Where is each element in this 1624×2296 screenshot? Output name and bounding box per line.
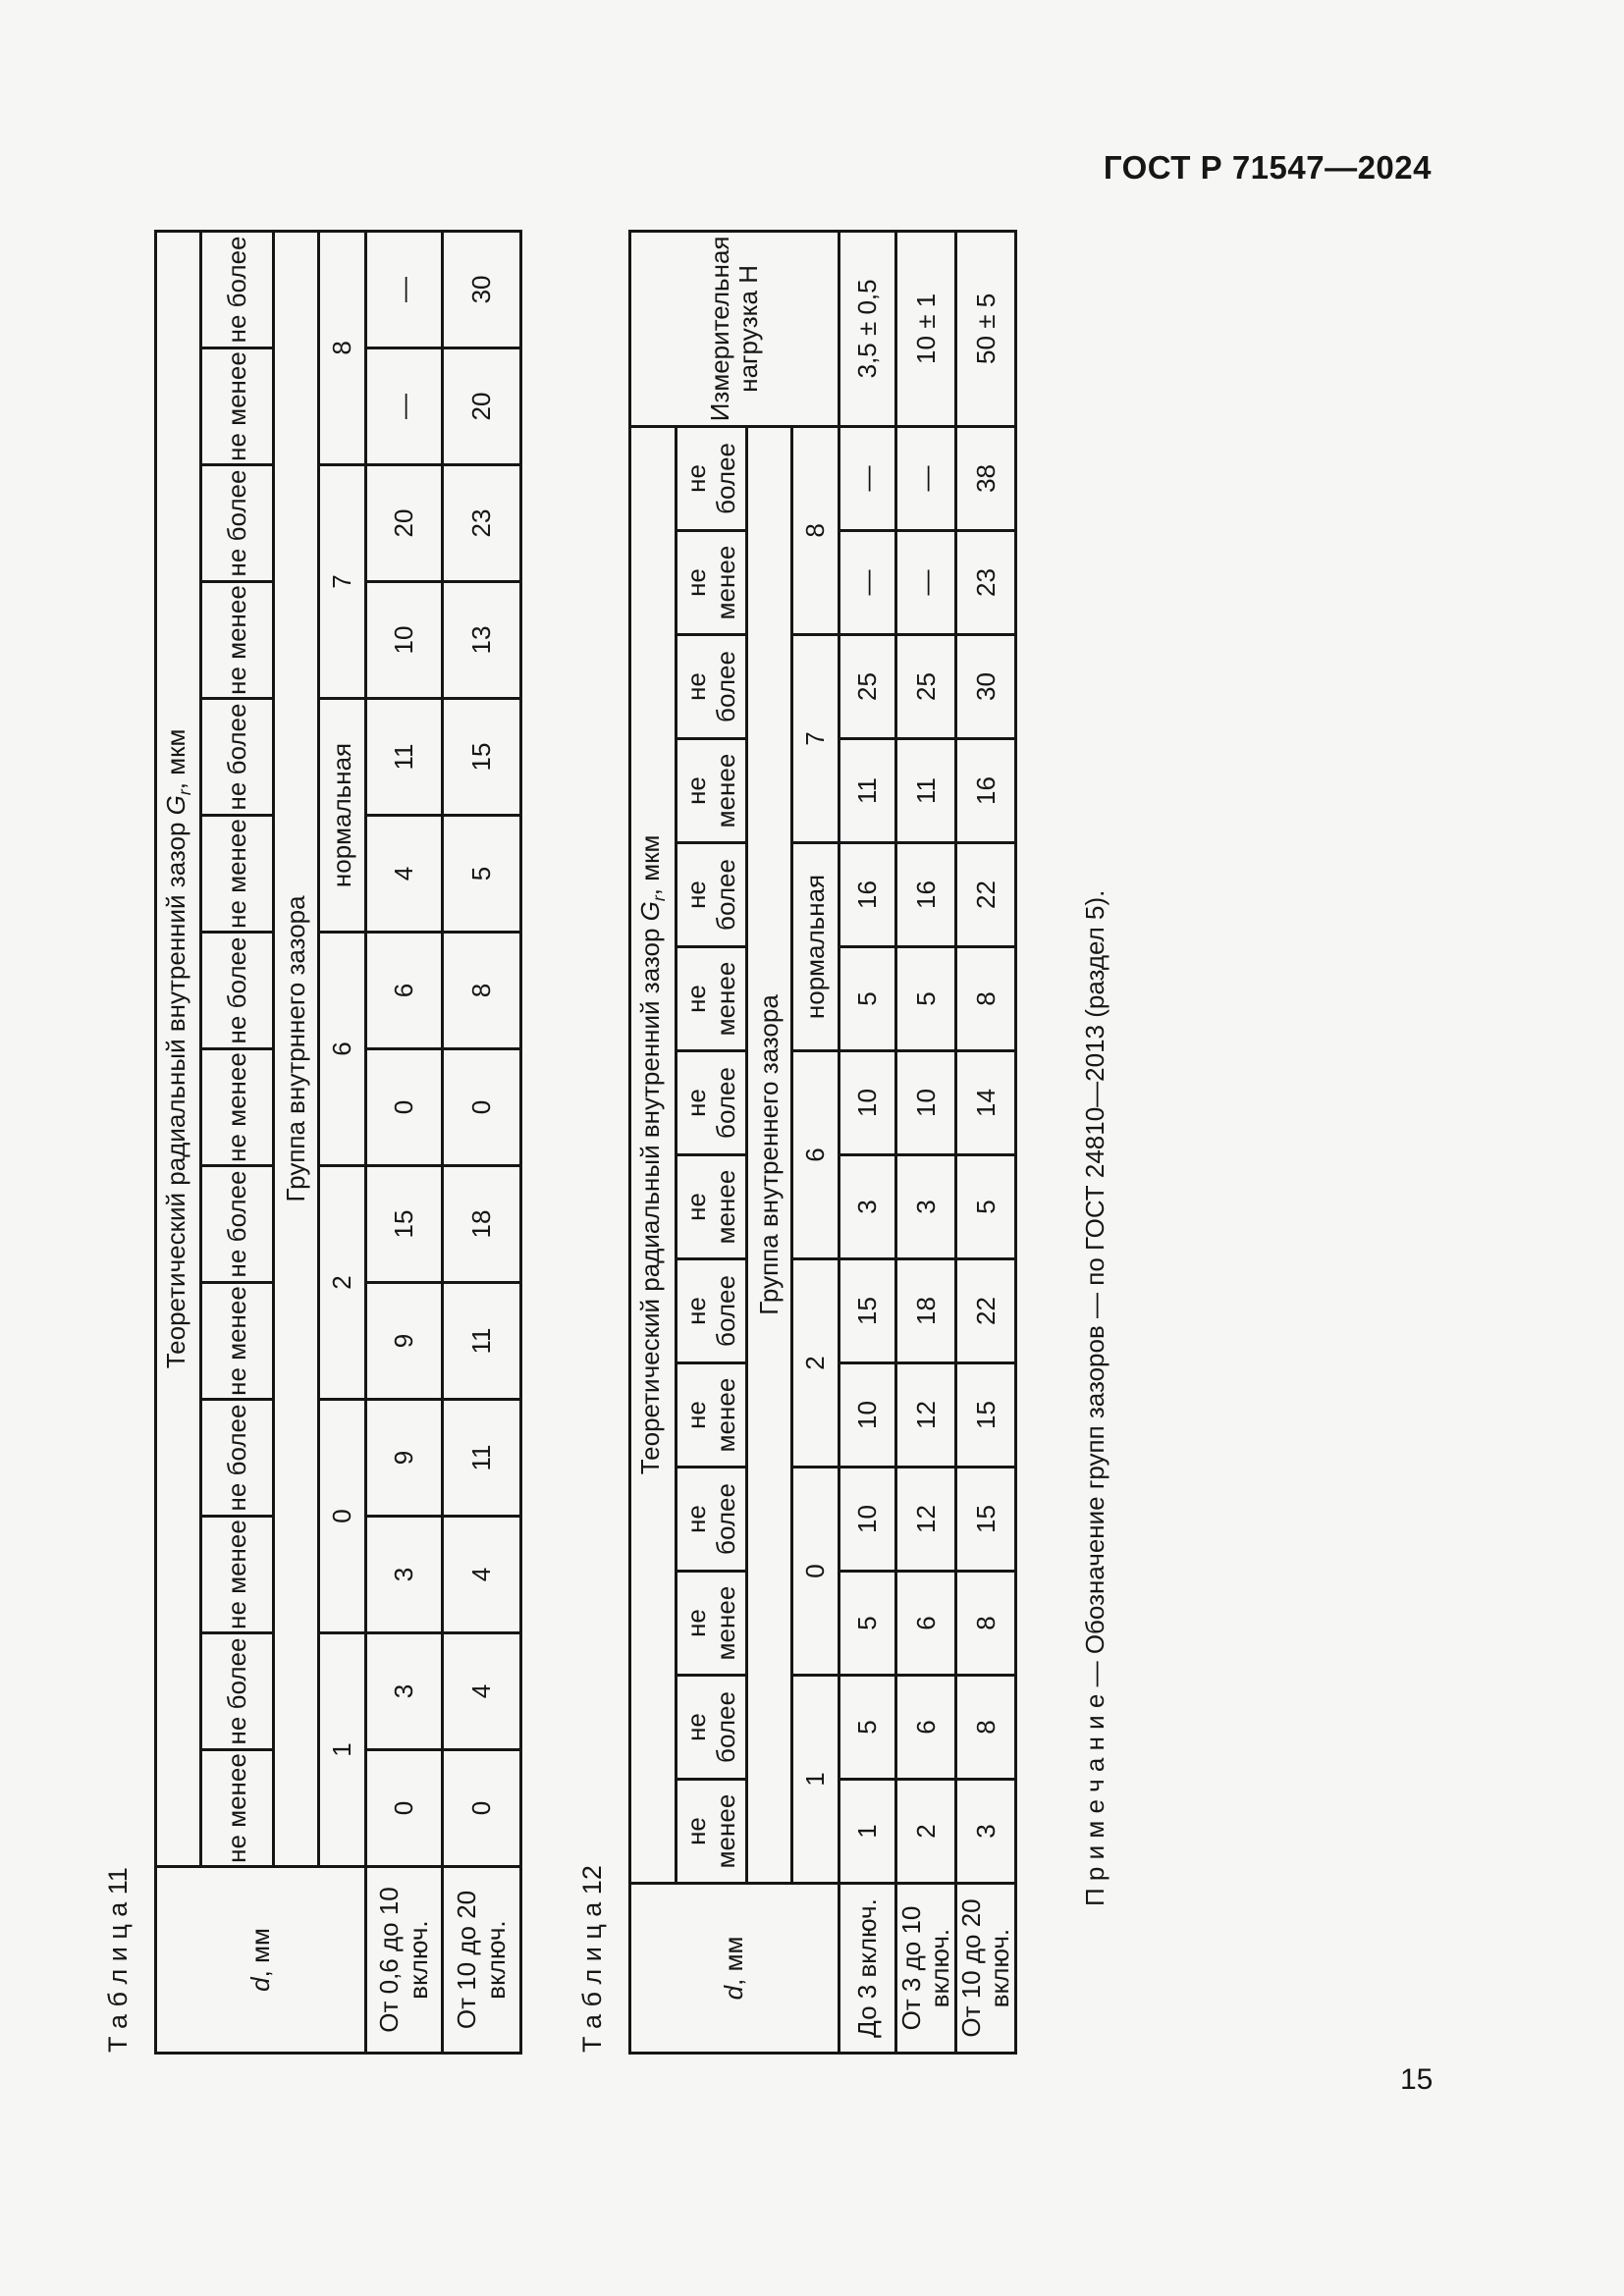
value-cell: 3 <box>366 1517 443 1633</box>
table-row: От 10 до 20 включ. 3 8 8 15 15 22 5 14 8… <box>956 231 1016 2053</box>
subheader-cell: не менее <box>677 1780 747 1884</box>
value-cell: 0 <box>443 1750 521 1867</box>
subheader-cell: не более <box>201 1400 274 1517</box>
subheader-cell: не менее <box>201 1517 274 1633</box>
value-cell: 14 <box>956 1051 1016 1155</box>
group-id-cell: нормальная <box>792 843 839 1051</box>
value-cell: — <box>896 426 956 530</box>
value-cell: 4 <box>366 816 443 933</box>
table-row: От 0,6 до 10 включ. 0 3 3 9 9 15 0 6 4 1… <box>366 231 443 2053</box>
value-cell: 10 <box>366 582 443 699</box>
subheader-cell: не более <box>677 1051 747 1155</box>
value-cell: 3 <box>896 1155 956 1259</box>
table-title-cell: Теоретический радиальный внутренний зазо… <box>156 231 201 1866</box>
subheader-cell: не более <box>201 1166 274 1283</box>
value-cell: 23 <box>443 465 521 582</box>
group-id-cell: 1 <box>319 1633 366 1867</box>
value-cell: — <box>839 531 896 635</box>
value-cell: 13 <box>443 582 521 699</box>
group-id-cell: 1 <box>792 1676 839 1884</box>
table11-rotated-container: Т а б л и ц а 11 d, мм Теоретический рад… <box>97 233 522 2055</box>
value-cell: 22 <box>956 843 1016 947</box>
value-cell: 11 <box>443 1400 521 1517</box>
group-id-cell: 0 <box>792 1468 839 1676</box>
row-label-cell: До 3 включ. <box>839 1884 896 2054</box>
load-value-cell: 3,5 ± 0,5 <box>839 231 896 426</box>
value-cell: 5 <box>839 1572 896 1676</box>
group-band-cell: Группа внутреннего зазора <box>747 426 792 1883</box>
value-cell: 11 <box>839 739 896 843</box>
load-value-cell: 50 ± 5 <box>956 231 1016 426</box>
subheader-cell: не более <box>201 1633 274 1750</box>
value-cell: 16 <box>896 843 956 947</box>
subheader-cell: не менее <box>677 947 747 1051</box>
value-cell: 10 <box>839 1363 896 1468</box>
value-cell: 8 <box>956 1572 1016 1676</box>
row-label-cell: От 3 до 10 включ. <box>896 1884 956 2054</box>
value-cell: 25 <box>896 635 956 739</box>
value-cell: 20 <box>443 348 521 465</box>
value-cell: 0 <box>366 1750 443 1867</box>
value-cell: 5 <box>896 947 956 1051</box>
table-row: От 3 до 10 включ. 2 6 6 12 12 18 3 10 5 … <box>896 231 956 2053</box>
value-cell: 25 <box>839 635 896 739</box>
value-cell: — <box>366 348 443 465</box>
document-page: ГОСТ Р 71547—2024 Т а б л и ц а 11 d, мм… <box>0 0 1624 2296</box>
subheader-cell: не более <box>677 426 747 530</box>
value-cell: 5 <box>839 1676 896 1780</box>
subheader-cell: не более <box>201 933 274 1049</box>
subheader-cell: не менее <box>201 1750 274 1867</box>
subheader-cell: не менее <box>201 1049 274 1166</box>
value-cell: 11 <box>443 1283 521 1400</box>
value-cell: 11 <box>896 739 956 843</box>
group-id-cell: 7 <box>792 635 839 843</box>
row-label-cell: От 0,6 до 10 включ. <box>366 1867 443 2054</box>
value-cell: 38 <box>956 426 1016 530</box>
value-cell: 16 <box>839 843 896 947</box>
group-id-cell: 6 <box>319 933 366 1166</box>
value-cell: 1 <box>839 1780 896 1884</box>
subheader-cell: не менее <box>201 816 274 933</box>
subheader-cell: не менее <box>677 739 747 843</box>
group-id-cell: 8 <box>792 426 839 634</box>
value-cell: 18 <box>443 1166 521 1283</box>
group-id-cell: 6 <box>792 1051 839 1259</box>
value-cell: 20 <box>366 465 443 582</box>
value-cell: 8 <box>443 933 521 1049</box>
value-cell: 6 <box>366 933 443 1049</box>
value-cell: — <box>839 426 896 530</box>
value-cell: 8 <box>956 947 1016 1051</box>
subheader-cell: не более <box>677 1676 747 1780</box>
table12: d, мм Теоретический радиальный внутренни… <box>628 230 1017 2055</box>
subheader-cell: не более <box>677 635 747 739</box>
table-row: До 3 включ. 1 5 5 10 10 15 3 10 5 16 11 … <box>839 231 896 2053</box>
subheader-cell: не менее <box>677 531 747 635</box>
table11-caption: Т а б л и ц а 11 <box>97 233 154 2055</box>
subheader-cell: не менее <box>677 1363 747 1468</box>
subheader-cell: не более <box>677 843 747 947</box>
subheader-cell: не более <box>677 1468 747 1572</box>
title-symbol: G <box>161 795 190 815</box>
d-symbol: d <box>719 1986 748 2000</box>
table11: d, мм Теоретический радиальный внутренни… <box>154 230 522 2055</box>
table-row: От 10 до 20 включ. 0 4 4 11 11 18 0 8 5 … <box>443 231 521 2053</box>
subheader-cell: не более <box>201 231 274 347</box>
value-cell: 3 <box>956 1780 1016 1884</box>
load-header-cell: Измерительная нагрузка Н <box>630 231 839 426</box>
subheader-cell: не более <box>201 699 274 816</box>
title-subscript: r <box>175 789 194 795</box>
table12-caption: Т а б л и ц а 12 <box>571 233 628 2055</box>
value-cell: 3 <box>366 1633 443 1750</box>
value-cell: 10 <box>839 1468 896 1572</box>
row-label-cell: От 10 до 20 включ. <box>443 1867 521 2054</box>
subheader-cell: не менее <box>201 582 274 699</box>
subheader-cell: не менее <box>201 348 274 465</box>
page-number: 15 <box>1400 2063 1433 2097</box>
value-cell: 9 <box>366 1283 443 1400</box>
document-header: ГОСТ Р 71547—2024 <box>1104 149 1432 187</box>
value-cell: 15 <box>839 1259 896 1363</box>
group-id-cell: 7 <box>319 465 366 699</box>
value-cell: 16 <box>956 739 1016 843</box>
note-label: П р и м е ч а н и е <box>1080 1694 1110 1906</box>
d-unit: , мм <box>245 1928 275 1977</box>
load-value-cell: 10 ± 1 <box>896 231 956 426</box>
value-cell: 4 <box>443 1633 521 1750</box>
value-cell: 12 <box>896 1468 956 1572</box>
d-header-cell: d, мм <box>156 1867 366 2054</box>
value-cell: 12 <box>896 1363 956 1468</box>
value-cell: 4 <box>443 1517 521 1633</box>
d-unit: , мм <box>719 1937 748 1986</box>
subheader-cell: не менее <box>201 1283 274 1400</box>
title-text: Теоретический радиальный внутренний зазо… <box>161 815 190 1368</box>
value-cell: — <box>366 231 443 347</box>
value-cell: 10 <box>839 1051 896 1155</box>
row-label-cell: От 10 до 20 включ. <box>956 1884 1016 2054</box>
value-cell: 15 <box>366 1166 443 1283</box>
table12-rotated-container: Т а б л и ц а 12 d, мм Теоретический рад… <box>571 233 1017 2055</box>
subheader-cell: не менее <box>677 1155 747 1259</box>
table-title-cell: Теоретический радиальный внутренний зазо… <box>630 426 677 1883</box>
value-cell: 5 <box>839 947 896 1051</box>
value-cell: 6 <box>896 1676 956 1780</box>
subheader-cell: не более <box>677 1259 747 1363</box>
value-cell: 11 <box>366 699 443 816</box>
value-cell: 3 <box>839 1155 896 1259</box>
value-cell: 9 <box>366 1400 443 1517</box>
group-id-cell: 0 <box>319 1400 366 1633</box>
value-cell: 18 <box>896 1259 956 1363</box>
value-cell: 8 <box>956 1676 1016 1780</box>
title-symbol: G <box>635 901 665 921</box>
value-cell: 5 <box>956 1155 1016 1259</box>
title-subscript: r <box>649 895 669 901</box>
d-symbol: d <box>245 1977 275 1991</box>
value-cell: 10 <box>896 1051 956 1155</box>
title-text: Теоретический радиальный внутренний зазо… <box>635 921 665 1474</box>
value-cell: 15 <box>443 699 521 816</box>
group-id-cell: 2 <box>319 1166 366 1400</box>
value-cell: 6 <box>896 1572 956 1676</box>
value-cell: 30 <box>956 635 1016 739</box>
subheader-cell: не более <box>201 465 274 582</box>
group-id-cell: нормальная <box>319 699 366 933</box>
value-cell: 30 <box>443 231 521 347</box>
subheader-cell: не менее <box>677 1572 747 1676</box>
d-header-cell: d, мм <box>630 1884 839 2054</box>
value-cell: 0 <box>443 1049 521 1166</box>
value-cell: 22 <box>956 1259 1016 1363</box>
group-id-cell: 8 <box>319 231 366 464</box>
value-cell: 5 <box>443 816 521 933</box>
value-cell: 2 <box>896 1780 956 1884</box>
note-text: — Обозначение групп зазоров — по ГОСТ 24… <box>1080 890 1110 1694</box>
group-band-cell: Группа внутрннего зазора <box>274 231 319 1866</box>
value-cell: 15 <box>956 1363 1016 1468</box>
value-cell: — <box>896 531 956 635</box>
title-unit: , мкм <box>161 729 190 790</box>
value-cell: 23 <box>956 531 1016 635</box>
note: П р и м е ч а н и е — Обозначение групп … <box>1080 738 1110 1906</box>
value-cell: 0 <box>366 1049 443 1166</box>
value-cell: 15 <box>956 1468 1016 1572</box>
title-unit: , мкм <box>635 835 665 896</box>
group-id-cell: 2 <box>792 1259 839 1468</box>
